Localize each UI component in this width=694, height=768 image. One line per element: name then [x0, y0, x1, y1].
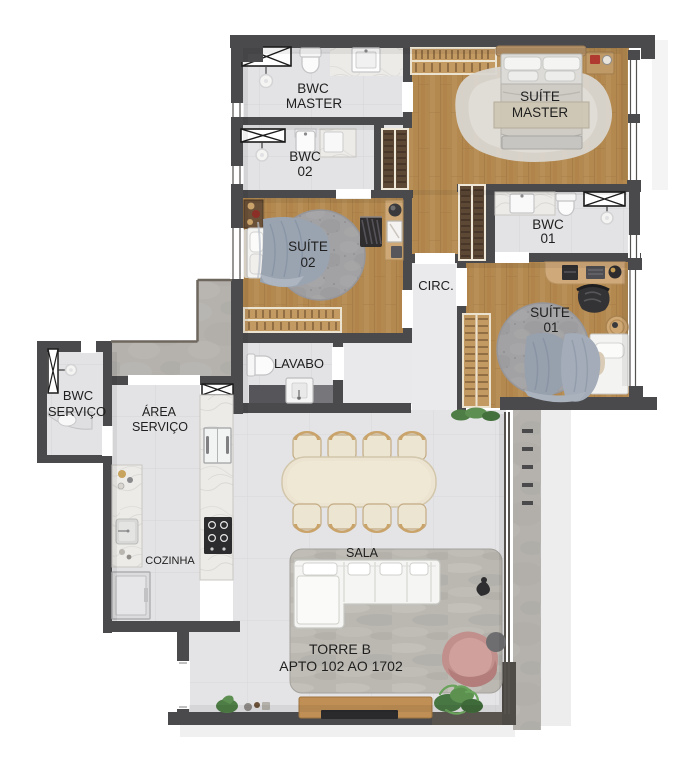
svg-text:SERVIÇO: SERVIÇO: [132, 420, 188, 434]
svg-text:BWC: BWC: [289, 149, 321, 164]
svg-text:LAVABO: LAVABO: [274, 356, 324, 371]
svg-text:SUÍTE: SUÍTE: [530, 305, 570, 320]
svg-text:SERVIÇO: SERVIÇO: [48, 404, 106, 419]
svg-text:MASTER: MASTER: [512, 105, 569, 120]
svg-text:02: 02: [297, 164, 312, 179]
svg-text:BWC: BWC: [532, 217, 564, 232]
svg-text:TORRE B: TORRE B: [309, 641, 371, 657]
svg-text:BWC: BWC: [297, 81, 329, 96]
svg-text:APTO 102 AO 1702: APTO 102 AO 1702: [279, 658, 403, 674]
svg-text:SUÍTE: SUÍTE: [520, 89, 560, 104]
svg-text:01: 01: [540, 231, 555, 246]
svg-text:MASTER: MASTER: [286, 96, 343, 111]
svg-text:CIRC.: CIRC.: [418, 278, 453, 293]
svg-text:01: 01: [543, 320, 558, 335]
svg-text:COZINHA: COZINHA: [145, 555, 195, 567]
svg-text:SALA: SALA: [346, 546, 379, 560]
svg-text:SUÍTE: SUÍTE: [288, 239, 328, 254]
svg-text:BWC: BWC: [63, 388, 93, 403]
svg-text:02: 02: [300, 255, 315, 270]
svg-text:ÁREA: ÁREA: [142, 404, 177, 419]
